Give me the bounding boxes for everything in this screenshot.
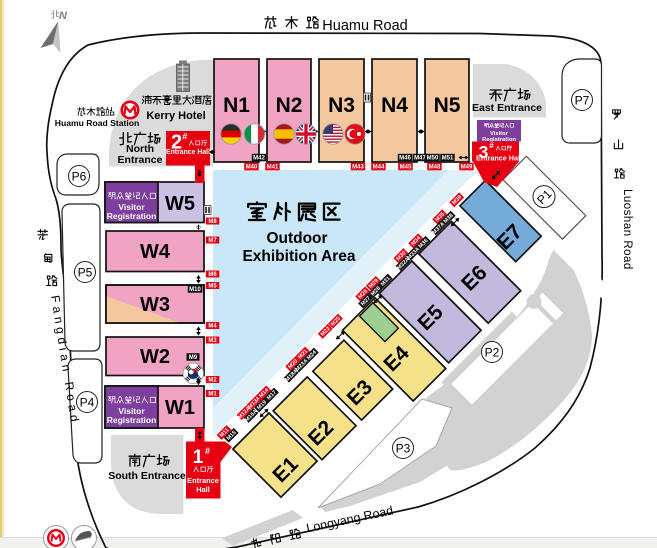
svg-text:P5: P5: [78, 266, 93, 280]
svg-text:Huamu Road Station: Huamu Road Station: [55, 118, 140, 128]
svg-text:M9: M9: [189, 355, 198, 361]
svg-text:P3: P3: [396, 442, 411, 456]
svg-text:South Entrance: South Entrance: [108, 470, 186, 482]
svg-text:M47: M47: [414, 156, 426, 162]
svg-text:#: #: [489, 141, 494, 150]
svg-text:Registration: Registration: [107, 211, 157, 221]
svg-text:Entrance Hall: Entrance Hall: [476, 154, 522, 163]
svg-text:Hall: Hall: [196, 485, 210, 494]
svg-text:M50: M50: [427, 156, 439, 162]
svg-text:P4: P4: [80, 396, 95, 410]
svg-text:#: #: [182, 132, 187, 142]
svg-text:M49: M49: [461, 165, 473, 171]
svg-text:Entrance: Entrance: [187, 476, 219, 485]
svg-text:N2: N2: [276, 94, 303, 117]
svg-text:M46: M46: [399, 156, 411, 162]
svg-text:P2: P2: [485, 346, 500, 360]
svg-text:1: 1: [193, 447, 204, 468]
svg-text:M45: M45: [400, 165, 412, 171]
svg-text:Entrance: Entrance: [118, 154, 163, 166]
svg-text:W4: W4: [140, 241, 171, 263]
svg-text:W5: W5: [165, 193, 195, 215]
svg-text:N3: N3: [328, 94, 355, 117]
svg-text:M6: M6: [208, 272, 217, 278]
svg-text:M8: M8: [208, 219, 217, 225]
svg-text:Entrance Hall: Entrance Hall: [166, 149, 210, 156]
svg-text:M43: M43: [352, 165, 364, 171]
svg-text:M40: M40: [246, 165, 258, 171]
svg-text:Luoshan Road: Luoshan Road: [621, 189, 633, 270]
svg-text:M51: M51: [442, 156, 454, 162]
svg-text:Huamu Road: Huamu Road: [322, 18, 407, 34]
svg-text:Exhibition Area: Exhibition Area: [242, 248, 355, 265]
svg-text:P6: P6: [72, 170, 87, 184]
svg-text:N5: N5: [434, 94, 461, 117]
svg-text:P7: P7: [575, 94, 590, 108]
svg-text:N: N: [59, 10, 68, 22]
svg-text:W3: W3: [140, 294, 170, 316]
svg-text:#: #: [205, 446, 210, 456]
svg-text:M2: M2: [208, 377, 217, 383]
svg-text:East Entrance: East Entrance: [472, 102, 542, 114]
svg-text:Outdoor: Outdoor: [266, 230, 327, 247]
svg-text:M3: M3: [208, 338, 217, 344]
svg-text:M42: M42: [253, 156, 265, 162]
svg-text:M4: M4: [208, 323, 217, 329]
svg-text:W2: W2: [140, 346, 170, 368]
svg-text:M10: M10: [189, 287, 201, 293]
svg-text:M44: M44: [373, 165, 385, 171]
svg-text:M41: M41: [267, 165, 279, 171]
svg-text:M5: M5: [208, 283, 217, 289]
svg-text:W1: W1: [165, 397, 195, 419]
svg-text:Registration: Registration: [107, 415, 157, 425]
svg-text:M7: M7: [208, 238, 217, 244]
svg-text:Kerry Hotel: Kerry Hotel: [146, 110, 205, 122]
svg-text:M1: M1: [208, 391, 217, 397]
svg-text:M48: M48: [429, 165, 441, 171]
svg-text:N4: N4: [381, 94, 408, 117]
svg-text:N1: N1: [223, 94, 250, 117]
